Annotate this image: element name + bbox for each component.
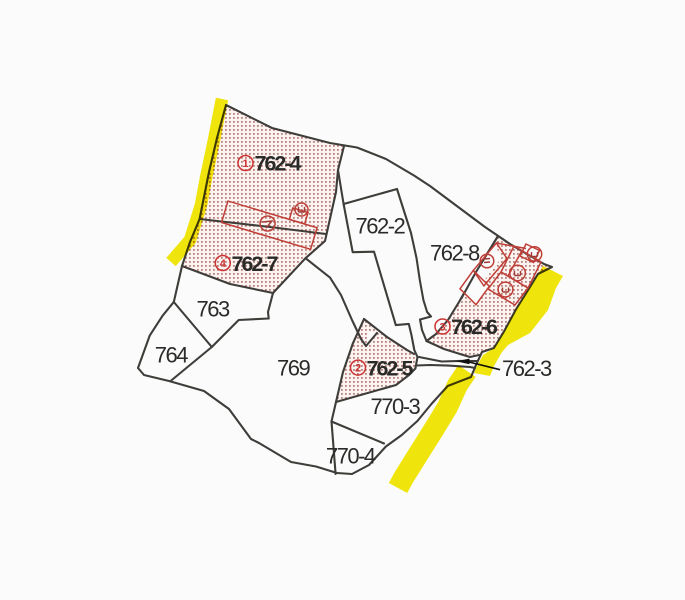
svg-text:762-2: 762-2: [356, 214, 406, 239]
svg-text:770-3: 770-3: [371, 394, 421, 419]
svg-text:762-4: 762-4: [255, 152, 302, 176]
svg-text:762-6: 762-6: [451, 315, 498, 339]
svg-text:763: 763: [197, 297, 230, 322]
svg-text:4: 4: [220, 258, 227, 270]
svg-text:764: 764: [155, 343, 188, 368]
svg-text:762-7: 762-7: [232, 252, 279, 276]
svg-text:3: 3: [439, 322, 445, 334]
svg-text:762-5: 762-5: [367, 357, 414, 381]
svg-text:770-4: 770-4: [326, 444, 376, 469]
svg-text:1: 1: [242, 158, 248, 170]
svg-text:762-8: 762-8: [430, 241, 480, 266]
svg-text:2: 2: [355, 363, 361, 375]
svg-text:769: 769: [277, 356, 310, 381]
svg-text:762-3: 762-3: [502, 356, 552, 381]
